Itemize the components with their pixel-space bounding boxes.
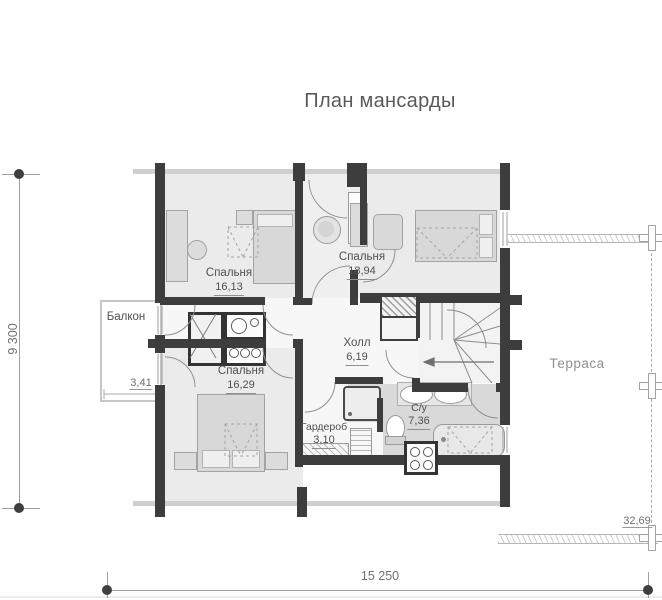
wall-ext-left xyxy=(155,163,165,303)
wall-stairs-south xyxy=(496,383,510,392)
label-bedroom-2: Спальня 18,94 xyxy=(339,250,385,280)
room-area: 3,10 xyxy=(312,434,335,449)
label-bathroom: С/у 7,36 xyxy=(407,402,430,430)
pillow xyxy=(202,450,230,468)
dim-dot xyxy=(14,169,24,179)
chimney-shaft xyxy=(380,316,418,341)
nightstand xyxy=(265,452,288,470)
room-area: 16,29 xyxy=(226,379,256,394)
chimney-flue xyxy=(380,295,418,318)
wall-ext-right xyxy=(500,163,510,210)
terrace-post xyxy=(639,525,662,551)
label-wardrobe: Гардероб 3,10 xyxy=(301,421,347,449)
eaves-line-bottom xyxy=(133,501,510,506)
floor-stairs xyxy=(418,303,500,383)
wall-bedroom1-south xyxy=(160,297,265,305)
label-bedroom-1: Спальня 16,13 xyxy=(206,266,252,296)
room-name: Спальня xyxy=(218,365,264,377)
terrace-post xyxy=(639,373,662,399)
label-balcony-area: 3,41 xyxy=(129,377,152,389)
page-edge-line xyxy=(0,596,662,598)
label-balcony: Балкон xyxy=(107,310,146,324)
nightstand xyxy=(236,210,253,225)
wall-ext-left xyxy=(155,385,165,517)
room-name: Терраса xyxy=(549,356,604,371)
wall-bedroom3-north xyxy=(293,339,303,348)
room-name: Холл xyxy=(343,337,370,349)
wall-ext-right xyxy=(500,248,510,425)
terrace-railing-top xyxy=(508,234,654,243)
toilet-tank xyxy=(385,436,406,445)
room-area: 7,36 xyxy=(407,415,430,430)
dim-width-label: 15 250 xyxy=(300,569,460,583)
post-terrace xyxy=(510,295,522,305)
room-area: 16,13 xyxy=(214,281,244,296)
room-name: Спальня xyxy=(206,267,252,279)
wall-vestibule-east xyxy=(360,187,367,245)
armchair xyxy=(373,214,403,250)
washer-four-burner xyxy=(404,441,438,475)
post xyxy=(347,163,367,187)
nightstand xyxy=(174,452,197,470)
room-area: 18,94 xyxy=(347,265,377,280)
pillow xyxy=(479,214,493,235)
wall-bedroom1-south xyxy=(293,297,303,305)
wardrobe-cabinet xyxy=(166,210,188,282)
bathtub xyxy=(433,424,505,457)
room-name: Гардероб xyxy=(301,421,347,433)
room-name: Спальня xyxy=(339,251,385,263)
pillow xyxy=(479,237,493,258)
wall-stairs-south xyxy=(412,383,468,392)
label-hall: Холл 6,19 xyxy=(343,336,370,366)
pillow xyxy=(257,214,293,227)
bed-single xyxy=(253,210,297,284)
wall-hall-north xyxy=(303,298,312,305)
dim-dot xyxy=(102,585,112,595)
dim-dot xyxy=(643,585,653,595)
wash-basin-round xyxy=(313,216,341,244)
plan-title: План мансарды xyxy=(0,90,662,113)
wall-bedroom3-north xyxy=(148,339,265,348)
terrace-railing-bottom xyxy=(498,534,658,544)
post xyxy=(297,487,307,517)
label-terrace-area: 32,69 xyxy=(622,515,652,527)
dim-height-label: 9 300 xyxy=(6,309,20,369)
cooktop-two-burner xyxy=(224,312,266,340)
round-table xyxy=(187,240,207,260)
bed-double xyxy=(415,210,497,262)
room-name: С/у xyxy=(411,402,427,414)
floorplan-page: { "title": "План мансарды", "plan": { "r… xyxy=(0,0,662,600)
eaves-line-top xyxy=(133,169,510,174)
wall-wardrobe-north xyxy=(335,377,383,384)
dim-line-horizontal xyxy=(107,590,648,591)
bed-double xyxy=(197,394,265,472)
wall-bath-wardrobe xyxy=(377,398,383,432)
post-terrace xyxy=(510,340,522,350)
dim-dot xyxy=(14,503,24,513)
label-bedroom-3: Спальня 16,29 xyxy=(218,364,264,394)
terrace-post xyxy=(639,225,662,251)
wall-bedroom1-east xyxy=(295,165,303,298)
shower-tray xyxy=(343,386,381,421)
label-terrace: Терраса xyxy=(549,356,604,373)
room-area: 6,19 xyxy=(345,351,368,366)
room-name: Балкон xyxy=(107,311,146,323)
pillow xyxy=(232,450,260,468)
clothes-rack-side xyxy=(350,428,372,457)
